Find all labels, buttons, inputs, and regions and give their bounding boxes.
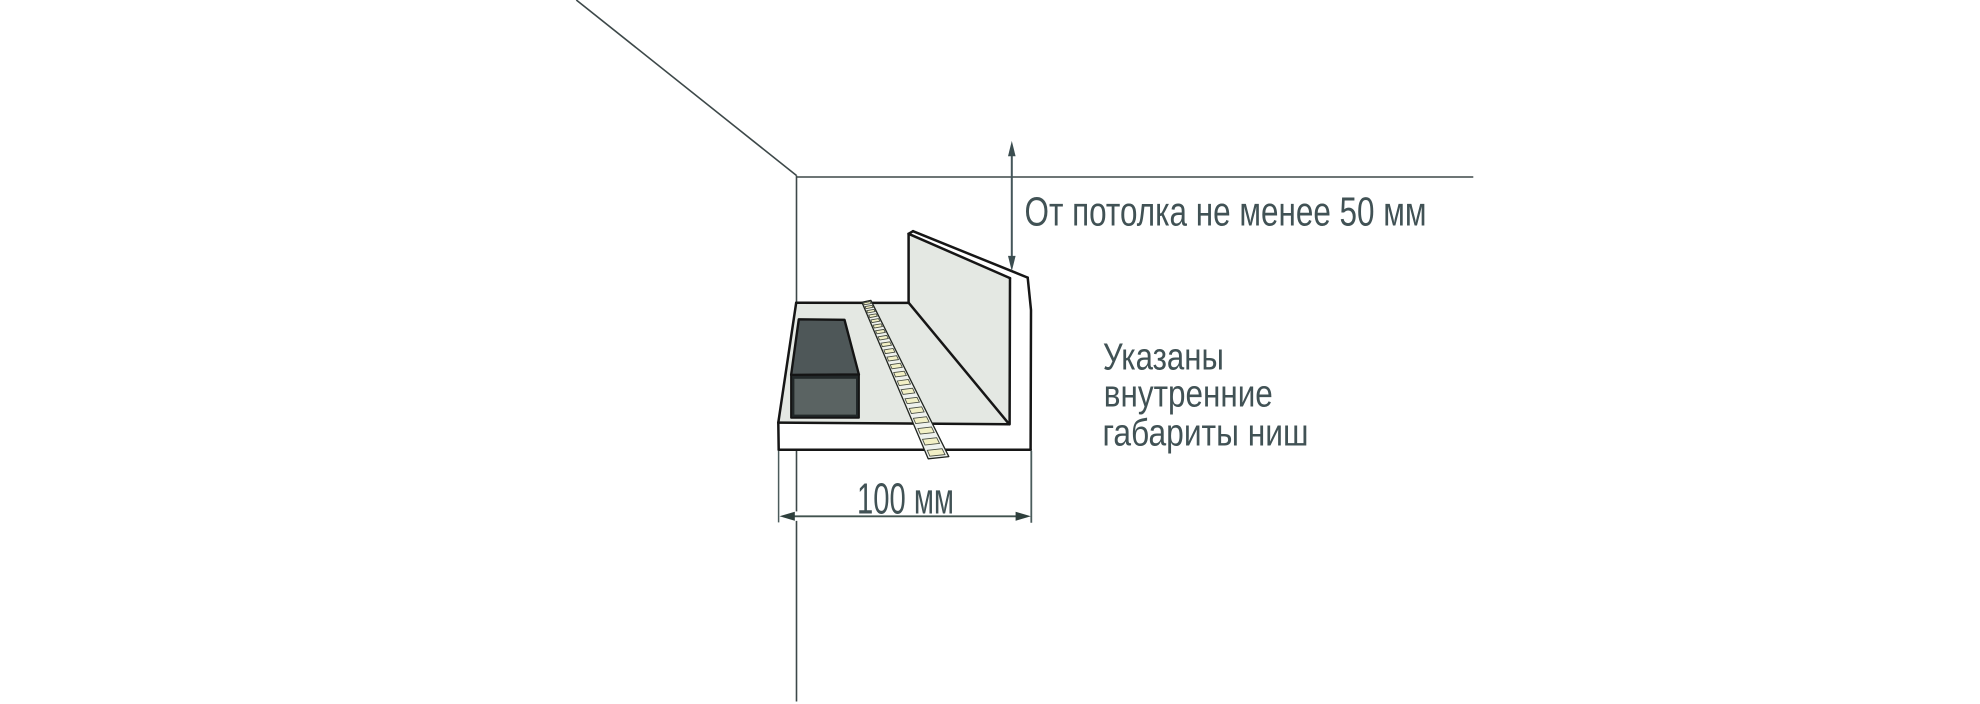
svg-text:внутренние: внутренние — [1104, 373, 1273, 415]
svg-text:Указаны: Указаны — [1103, 336, 1224, 378]
svg-text:100 мм: 100 мм — [857, 475, 954, 524]
svg-text:габариты ниш: габариты ниш — [1103, 411, 1309, 453]
svg-text:От потолка не менее 50 мм: От потолка не менее 50 мм — [1025, 189, 1427, 235]
